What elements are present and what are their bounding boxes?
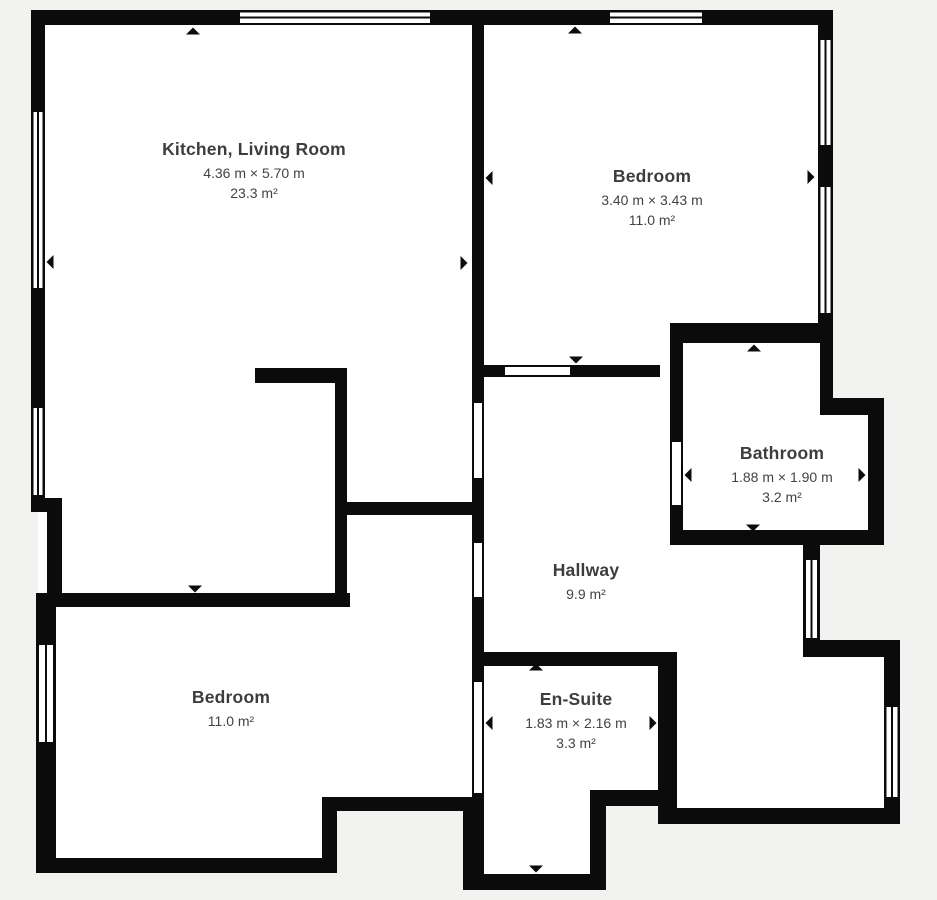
floor-hallway [660,545,820,816]
window [34,408,43,495]
wall-segment [47,498,62,600]
window [610,13,702,24]
floor-bedroom-bottom [42,600,330,866]
floor-bedroom-top [478,18,826,371]
wall-segment [820,343,833,415]
wall-segment [31,10,833,25]
wall-segment [36,858,337,873]
door-opening [474,543,482,597]
wall-segment [670,323,683,545]
floor-plan-drawing [0,0,937,900]
wall-segment [472,652,677,666]
floor-hallway [810,650,892,816]
room-floors [38,18,892,882]
floor-bathroom [676,408,876,538]
wall-segment [670,323,833,343]
wall-segment [463,874,606,890]
wall-segment [677,808,900,824]
window [887,707,898,797]
window [821,187,831,313]
wall-segment [36,593,350,607]
floor-hallway [478,371,683,660]
floor-bedroom-bottom [330,600,478,805]
wall-segment [335,368,347,607]
window [34,112,43,288]
wall-segment [322,797,480,811]
door-opening [474,682,482,793]
wall-segment [590,790,658,806]
window [39,645,53,742]
wall-segment [335,502,484,515]
window [821,40,831,145]
window [240,13,430,24]
door-opening [505,367,570,375]
floor-plan: Kitchen, Living Room 4.36 m × 5.70 m 23.… [0,0,937,900]
wall-segment [868,400,884,545]
floor-ensuite [478,660,598,882]
wall-segment [670,530,884,545]
wall-segment [658,652,677,824]
door-opening [672,442,681,505]
door-opening [474,403,482,478]
floor-kitchen-living [38,18,478,606]
window [806,560,817,638]
wall-segment [255,368,347,383]
